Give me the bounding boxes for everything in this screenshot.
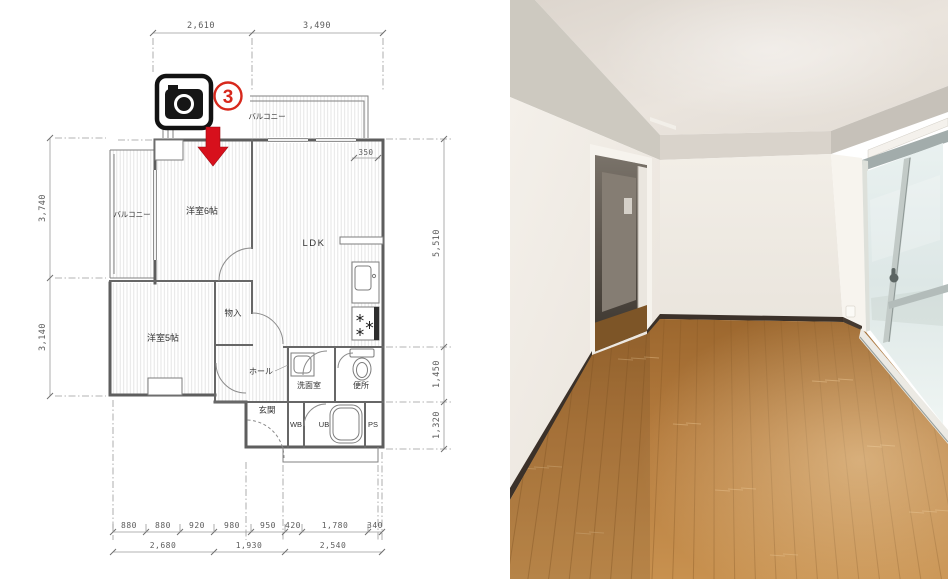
room-photo[interactable] <box>510 0 948 579</box>
dim-top-1: 2,610 <box>187 21 215 31</box>
label-western-room-6: 洋室6帖 <box>186 205 218 216</box>
hallway-panel <box>624 198 632 214</box>
dim-right-3: 1,320 <box>432 411 442 439</box>
porch-lines <box>283 447 378 462</box>
dim-right-2: 1,450 <box>432 360 442 388</box>
label-hall: ホール <box>249 367 273 376</box>
dim-total-2: 1,930 <box>236 541 263 550</box>
dim-seg-5: 950 <box>260 521 276 530</box>
label-western-room-5: 洋室5帖 <box>147 332 179 343</box>
dim-seg-2: 880 <box>155 521 171 530</box>
label-washroom: 洗面室 <box>297 380 321 390</box>
dim-seg-1: 880 <box>121 521 137 530</box>
dim-seg-6: 420 <box>285 521 301 530</box>
label-balcony-left: バルコニー <box>113 210 150 219</box>
dim-seg-8: 340 <box>367 521 383 530</box>
dim-left-2: 3,140 <box>38 323 48 351</box>
photo-marker-3[interactable]: 3 <box>157 76 242 128</box>
door-frame-left-jamb <box>590 150 595 355</box>
dim-left-1: 3,740 <box>38 194 48 222</box>
dim-seg-4: 980 <box>224 521 240 530</box>
label-ps: PS <box>368 420 378 429</box>
dim-balcony-depth: 350 <box>358 148 373 157</box>
wall-outlet <box>846 306 855 317</box>
room-photo-image <box>510 0 948 579</box>
label-closet: 物入 <box>224 308 242 318</box>
hallway-wall <box>602 172 636 312</box>
dim-right-1: 5,510 <box>432 229 442 257</box>
label-entrance: 玄関 <box>258 405 275 415</box>
label-toilet: 便所 <box>353 380 369 390</box>
dim-seg-3: 920 <box>189 521 205 530</box>
dim-top-2: 3,490 <box>303 21 331 31</box>
label-ldk: LDK <box>303 238 326 249</box>
label-ub: UB <box>319 420 329 429</box>
label-balcony-top: バルコニー <box>248 112 285 121</box>
listing-composite: 2,610 3,490 3,740 3,140 5,510 1,450 1,32… <box>0 0 948 579</box>
doorway <box>590 144 652 355</box>
marker-number: 3 <box>223 87 234 108</box>
floor-plan-panel: 2,610 3,490 3,740 3,140 5,510 1,450 1,32… <box>0 0 510 579</box>
dim-total-3: 2,540 <box>320 541 347 550</box>
dim-total-1: 2,680 <box>150 541 177 550</box>
floor-plan-drawing: 2,610 3,490 3,740 3,140 5,510 1,450 1,32… <box>0 0 510 579</box>
door-frame-right-jamb <box>647 164 652 338</box>
label-wb: WB <box>290 420 302 429</box>
back-wall <box>660 154 843 322</box>
dim-seg-7: 1,780 <box>322 521 349 530</box>
